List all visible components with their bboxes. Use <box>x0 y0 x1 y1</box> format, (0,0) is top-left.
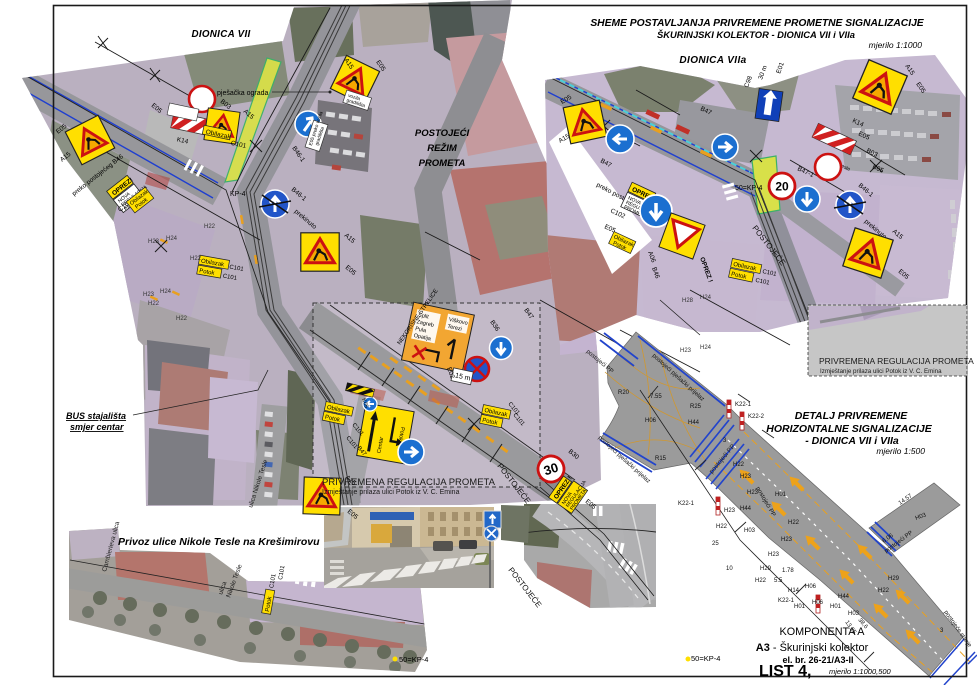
svg-text:H22: H22 <box>788 520 800 526</box>
svg-text:H23: H23 <box>781 537 793 543</box>
svg-text:H03: H03 <box>744 528 756 534</box>
svg-text:H01: H01 <box>775 492 787 498</box>
svg-text:H24: H24 <box>700 345 712 351</box>
svg-text:H23: H23 <box>768 552 780 558</box>
svg-text:K22-2: K22-2 <box>748 414 765 420</box>
svg-text:H03: H03 <box>848 611 860 617</box>
svg-text:H24: H24 <box>166 236 178 242</box>
svg-text:20: 20 <box>775 180 789 194</box>
svg-text:Izmještanje prilaza ulici Poto: Izmještanje prilaza ulici Potok iz V. C.… <box>820 368 942 375</box>
svg-text:Izmještanje prilaza ulici Poto: Izmještanje prilaza ulici Potok iz V. C.… <box>322 489 460 496</box>
svg-text:H24: H24 <box>700 295 712 301</box>
svg-text:BUS stajališta: BUS stajališta <box>66 411 126 421</box>
svg-text:50=KP-4: 50=KP-4 <box>399 655 428 664</box>
svg-text:H23: H23 <box>143 292 155 298</box>
svg-text:H23: H23 <box>724 508 736 514</box>
svg-text:25: 25 <box>712 541 719 547</box>
svg-text:H14: H14 <box>788 588 800 594</box>
svg-text:REŽIM: REŽIM <box>427 142 458 154</box>
svg-text:SHEME POSTAVLJANJA PRIVREMENE: SHEME POSTAVLJANJA PRIVREMENE PROMETNE S… <box>590 18 924 29</box>
svg-text:H22: H22 <box>190 256 202 262</box>
svg-text:smjer centar: smjer centar <box>70 422 124 432</box>
svg-text:50=KP-4: 50=KP-4 <box>735 185 763 192</box>
svg-text:HORIZONTALNE SIGNALIZACIJE: HORIZONTALNE SIGNALIZACIJE <box>766 423 932 435</box>
svg-text:K22-1: K22-1 <box>778 598 795 604</box>
svg-text:H22: H22 <box>755 578 767 584</box>
svg-text:H22: H22 <box>878 588 890 594</box>
svg-text:H23: H23 <box>148 239 160 245</box>
svg-text:Privoz ulice Nikole Tesle na K: Privoz ulice Nikole Tesle na Krešimirovu <box>118 536 320 548</box>
svg-text:R20: R20 <box>618 390 630 396</box>
svg-text:H23: H23 <box>740 474 752 480</box>
svg-text:7.55: 7.55 <box>650 394 662 400</box>
svg-text:mjerilo 1:1000: mjerilo 1:1000 <box>869 40 923 50</box>
svg-text:KOMPONENTA A: KOMPONENTA A <box>780 626 866 638</box>
svg-text:KP-4: KP-4 <box>230 191 246 198</box>
svg-text:H06: H06 <box>812 600 824 606</box>
svg-text:POSTOJEĆI: POSTOJEĆI <box>415 127 470 139</box>
svg-text:DIONICA VII: DIONICA VII <box>191 29 250 40</box>
svg-text:LIST 4,: LIST 4, <box>759 663 811 680</box>
svg-text:H44: H44 <box>838 594 850 600</box>
svg-text:DIONICA VIIa: DIONICA VIIa <box>679 55 746 66</box>
svg-text:mjerilo 1:500: mjerilo 1:500 <box>876 446 925 456</box>
svg-text:R15: R15 <box>655 456 667 462</box>
svg-text:DETALJ PRIVREMENE: DETALJ PRIVREMENE <box>795 410 908 422</box>
svg-text:H22: H22 <box>733 462 745 468</box>
svg-text:1.78: 1.78 <box>782 568 794 574</box>
svg-text:H29: H29 <box>760 566 772 572</box>
svg-text:H23: H23 <box>680 348 692 354</box>
svg-text:K22-1: K22-1 <box>678 501 695 507</box>
svg-text:H44: H44 <box>740 506 752 512</box>
svg-text:H22: H22 <box>716 524 728 530</box>
svg-text:50=KP-4: 50=KP-4 <box>691 654 720 663</box>
svg-text:ŠKURINJSKI KOLEKTOR - DIONICA: ŠKURINJSKI KOLEKTOR - DIONICA VII i VIIa <box>657 29 855 40</box>
svg-text:5.5: 5.5 <box>774 578 783 584</box>
svg-text:H01: H01 <box>794 604 806 610</box>
svg-text:H29: H29 <box>888 576 900 582</box>
svg-text:PROMETA: PROMETA <box>419 158 466 169</box>
svg-text:PRIVREMENA REGULACIJA PROMETA: PRIVREMENA REGULACIJA PROMETA <box>819 356 974 366</box>
svg-text:H22: H22 <box>148 301 160 307</box>
svg-text:A3 - Škurinjski kolektor: A3 - Škurinjski kolektor <box>756 641 869 654</box>
svg-text:H01: H01 <box>830 604 842 610</box>
svg-text:H44: H44 <box>688 420 700 426</box>
svg-text:K22-1: K22-1 <box>735 402 752 408</box>
svg-text:mjerilo 1:1000,500: mjerilo 1:1000,500 <box>829 667 892 676</box>
svg-text:10: 10 <box>726 566 733 572</box>
svg-text:R25: R25 <box>690 404 702 410</box>
svg-text:H28: H28 <box>682 298 694 304</box>
svg-text:H06: H06 <box>805 584 817 590</box>
svg-text:H06: H06 <box>645 418 657 424</box>
svg-text:H22: H22 <box>204 224 216 230</box>
svg-text:PRIVREMENA REGULACIJA PROMETA: PRIVREMENA REGULACIJA PROMETA <box>322 477 496 488</box>
svg-text:pješačka ograda: pješačka ograda <box>217 90 268 97</box>
svg-text:H22: H22 <box>176 316 188 322</box>
svg-text:H24: H24 <box>160 289 172 295</box>
